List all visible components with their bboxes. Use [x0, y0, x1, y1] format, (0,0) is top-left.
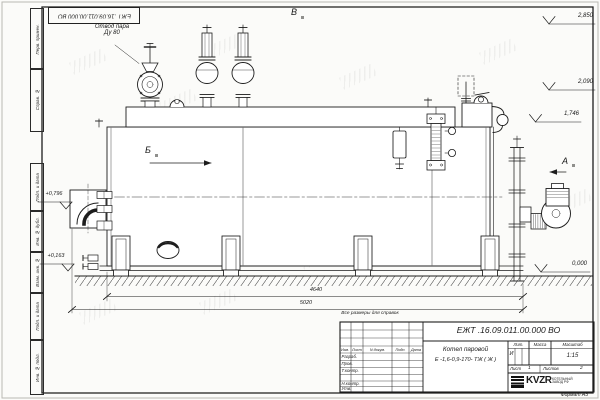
scale-value: 1:15 — [551, 353, 594, 359]
part-title-line2: Е -1,6-0,9-170- ТЖ ( Ж ) — [424, 358, 507, 364]
margin-stamp: Инв. № дубл. — [30, 210, 44, 253]
utv-label: Утв. — [342, 387, 352, 392]
margin-stamp: Подп. и дата — [30, 292, 44, 341]
blower-assembly — [520, 184, 571, 230]
sheets-label: Листов — [543, 367, 559, 372]
drawing-sheet: Перв. примен. Справ. № Подп. и дата Инв.… — [0, 0, 600, 400]
steam-dome — [458, 76, 508, 133]
format-note: Формат А3 — [538, 393, 588, 398]
view-label-b: Б — [145, 146, 151, 155]
podp-header: Подп. — [392, 348, 409, 352]
doc-number: ЕЖТ .16.09.011.00.000 ВО — [424, 326, 593, 335]
tkontr-label: Т.контр. — [342, 369, 359, 374]
prov-label: Пров. — [342, 362, 353, 367]
view-label-a: А — [562, 157, 568, 166]
steam-outlet-valve — [138, 44, 163, 108]
safety-valve-2 — [232, 25, 254, 107]
manhole — [157, 242, 179, 259]
elevation-2850: 2,850 — [551, 13, 593, 19]
data-header: Дата — [409, 348, 423, 352]
steam-outlet-callout: Отвод пара Ду 80 — [84, 24, 140, 37]
reference-note: Все размеры для справок — [340, 311, 400, 316]
elevation-2090: 2,090 — [551, 79, 593, 85]
massa-header: Масса — [529, 343, 551, 348]
safety-valve-1 — [196, 25, 218, 107]
margin-stamp: Подп. и дата — [30, 163, 44, 212]
elevation-0163: +0,163 — [39, 254, 73, 260]
margin-stamp: Перв. примен. — [30, 8, 44, 70]
sheets-value: 2 — [580, 366, 583, 371]
view-label-v: В — [291, 8, 297, 17]
kvzr-logo-icon — [511, 376, 524, 388]
lit-header: Лит. — [508, 343, 529, 348]
view-ref-mark — [155, 154, 158, 157]
margin-stamp: Инв. № подл. — [30, 339, 44, 395]
view-ref-mark — [572, 164, 575, 167]
doc-header: N докум. — [363, 348, 392, 352]
burner-assembly — [70, 184, 112, 270]
kvzr-logo-text: KVZR — [526, 375, 552, 386]
sheet-label: Лист — [510, 367, 521, 372]
dimension-5020: 5020 — [285, 301, 327, 307]
razrab-label: Разраб. — [342, 355, 358, 360]
sheet-value: 1 — [528, 366, 531, 371]
company-name: КОТЕЛЬНЫЙ ЗАВОД РФ — [552, 378, 573, 386]
margin-stamp: Справ. № — [30, 68, 44, 132]
masshtab-header: Масштаб — [551, 343, 594, 348]
lit-value: И — [508, 352, 515, 358]
part-title-line1: Котел паровой — [424, 347, 507, 354]
lifting-eye — [170, 99, 184, 107]
elevation-1746: 1,746 — [537, 111, 579, 117]
elevation-0796: +0,796 — [37, 192, 71, 198]
boiler-drawing-canvas — [0, 0, 600, 400]
izm-header: Изм. — [341, 348, 349, 352]
top-stamp: ЕЖТ .16.09.011.00.000 ВО — [48, 7, 140, 24]
elevation-0000: 0,000 — [543, 261, 587, 267]
list-header: Лист — [352, 348, 362, 352]
view-ref-mark — [301, 16, 304, 19]
dimension-4640: 4640 — [295, 288, 337, 294]
